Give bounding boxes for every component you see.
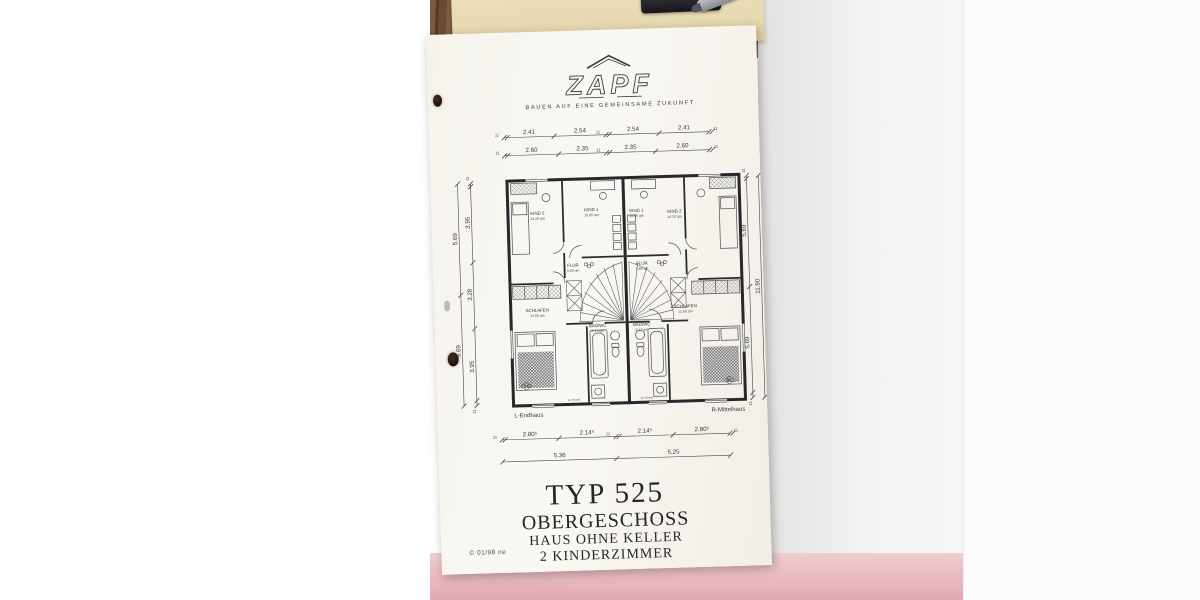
room-name: FLUR bbox=[567, 263, 579, 268]
room-area: 14.20 qm bbox=[667, 215, 682, 219]
wall-mark: 11 bbox=[495, 150, 500, 155]
room-area: 8.13 qm bbox=[592, 329, 605, 333]
pillow bbox=[721, 197, 735, 208]
room-area: 3.69 qm bbox=[636, 267, 649, 271]
room-area: 10.65 qm bbox=[629, 214, 644, 218]
panel-label: W.-Paneel bbox=[568, 398, 581, 402]
room-name: FLUR bbox=[636, 261, 648, 266]
wall-mark: 11 bbox=[748, 401, 753, 406]
shelf-unit bbox=[613, 215, 622, 249]
wall-mark: 11 bbox=[714, 144, 719, 149]
dim-label: 2.60 bbox=[525, 147, 538, 154]
dim-label: 3.28 bbox=[467, 288, 474, 301]
room-name: SCHLAFEN bbox=[673, 303, 697, 309]
toilet-icon bbox=[612, 347, 619, 357]
dim-label: 11.90 bbox=[754, 278, 761, 294]
pillow bbox=[517, 334, 534, 346]
shelf-unit bbox=[627, 215, 636, 249]
room-name: KIND 1 bbox=[629, 208, 644, 213]
dim-label: 2.35 bbox=[624, 144, 637, 151]
room-name: BAD/WC bbox=[633, 321, 651, 327]
room-area: 10.65 qm bbox=[584, 213, 599, 217]
dim-label: 5.69 bbox=[744, 336, 751, 349]
washer-door bbox=[657, 386, 664, 393]
chair bbox=[640, 191, 647, 198]
pillow bbox=[721, 328, 738, 340]
washer-icon bbox=[592, 385, 605, 398]
dim-label: 2.80⁵ bbox=[523, 431, 538, 438]
room-area: 8.13 qm bbox=[636, 328, 649, 332]
wall-mark: 11 bbox=[493, 435, 498, 440]
stairs-left bbox=[578, 261, 624, 321]
chair bbox=[542, 193, 550, 201]
sink-icon bbox=[610, 331, 619, 340]
dim-label: 5.69 bbox=[452, 233, 459, 246]
house-label-right: R-Mittelhaus bbox=[712, 407, 746, 414]
room-area: 14.20 qm bbox=[530, 217, 545, 221]
dim-label: 2.54 bbox=[627, 126, 640, 133]
chair bbox=[599, 192, 606, 199]
wardrobe-x-boxes bbox=[566, 281, 582, 311]
pillow bbox=[536, 333, 553, 345]
bathtub-inner bbox=[650, 331, 663, 373]
pillow bbox=[702, 328, 719, 340]
furniture-left-unit bbox=[510, 180, 626, 400]
plant-icon bbox=[657, 260, 666, 265]
dim-label: 5.69 bbox=[741, 224, 748, 237]
room-name: BAD/WC bbox=[589, 323, 607, 329]
dim-label: 5.25 bbox=[667, 449, 680, 456]
wall-mark: 11 bbox=[472, 409, 477, 414]
wall-mark: 11 bbox=[495, 132, 500, 137]
wall-mark: 11 bbox=[465, 176, 470, 181]
desk bbox=[590, 180, 614, 190]
plant-icon bbox=[584, 263, 593, 268]
wall-mark: 11 bbox=[596, 129, 601, 134]
left-margin bbox=[0, 0, 430, 600]
dim-label: 2.14⁵ bbox=[638, 427, 653, 434]
bed-cover bbox=[518, 351, 555, 388]
dim-label: 3.95 bbox=[469, 360, 476, 373]
wall-mark: 11 bbox=[596, 147, 601, 152]
wall-mark: 11 bbox=[734, 427, 739, 432]
document-page: ZAPF BAUEN AUF EINE GEMEINSAME ZUKUNFT 2… bbox=[426, 25, 772, 575]
room-name: SCHLAFEN bbox=[525, 307, 549, 313]
smudge-mark bbox=[444, 300, 450, 311]
photo-stage: ZAPF BAUEN AUF EINE GEMEINSAME ZUKUNFT 2… bbox=[0, 0, 1200, 600]
room-name: KIND 2 bbox=[530, 211, 545, 216]
bed-cover bbox=[702, 346, 739, 383]
logo-tagline: BAUEN AUF EINE GEMEINSAME ZUKUNFT bbox=[525, 100, 695, 111]
dim-label: 5.36 bbox=[553, 452, 566, 459]
chair bbox=[697, 189, 705, 197]
wardrobe bbox=[709, 177, 735, 189]
dim-label: 2.54 bbox=[574, 127, 587, 134]
dim-label: 2.60 bbox=[676, 142, 689, 149]
dim-label: 2.80⁵ bbox=[694, 426, 709, 433]
room-area: 3.69 qm bbox=[567, 269, 580, 273]
dim-label: 2.35 bbox=[576, 145, 589, 152]
dim-label: 2.41 bbox=[678, 124, 691, 131]
roof-icon bbox=[587, 55, 630, 68]
house-label-left: L-Endhaus bbox=[514, 413, 543, 420]
toilet-icon bbox=[637, 346, 644, 356]
dim-label: 2.41 bbox=[523, 129, 536, 136]
dimension-labels-top: 2.41 2.54 2.54 2.41 11 11 11 2.60 2.35 2… bbox=[495, 123, 719, 155]
right-table-surface bbox=[758, 0, 963, 600]
roof-inner-icon bbox=[593, 59, 626, 68]
pillow bbox=[513, 204, 527, 215]
bathtub-inner bbox=[592, 333, 605, 375]
washer-icon bbox=[653, 383, 666, 396]
panel-label: W.-Paneel bbox=[641, 395, 654, 399]
room-area: 13.50 qm bbox=[678, 309, 693, 313]
dim-label: 3.95 bbox=[464, 216, 471, 229]
copyright-note: © 01/98 ne bbox=[469, 549, 506, 557]
room-name: KIND 1 bbox=[584, 207, 599, 212]
wardrobe bbox=[511, 183, 537, 195]
room-name: KIND 2 bbox=[667, 208, 682, 213]
wall-mark: 11 bbox=[713, 126, 718, 131]
wall-mark: 11 bbox=[741, 168, 746, 173]
wall-mark: 11 bbox=[606, 431, 611, 436]
dimension-labels-left: 3.95 3.28 3.95 11 11 5.69 5.69 bbox=[450, 176, 477, 415]
desk bbox=[631, 179, 655, 189]
washer-door bbox=[595, 388, 602, 395]
right-margin bbox=[963, 0, 1200, 600]
room-area: 13.50 qm bbox=[530, 314, 545, 318]
dim-label: 2.14⁵ bbox=[580, 429, 595, 436]
zapf-logo: ZAPF BAUEN AUF EINE GEMEINSAME ZUKUNFT bbox=[524, 53, 695, 111]
